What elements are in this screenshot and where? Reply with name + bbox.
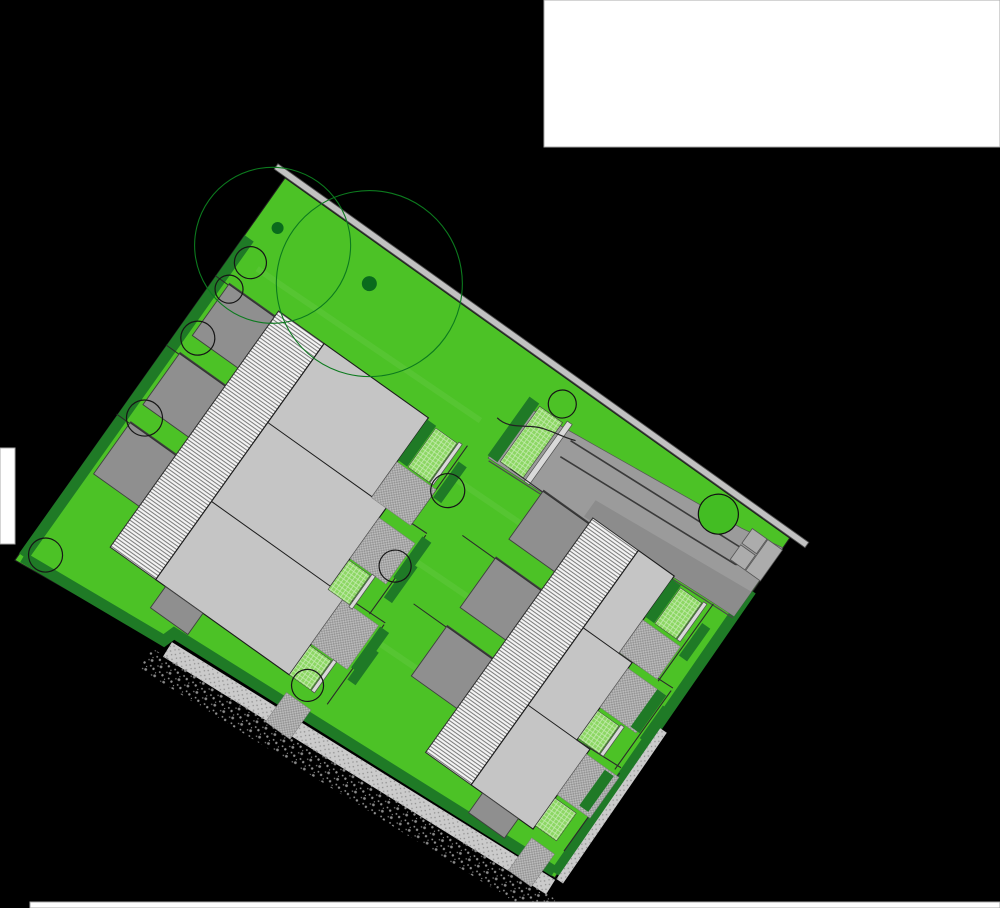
site-plan-canvas (0, 0, 1000, 908)
white-background-patch (0, 448, 15, 544)
site-plan-drawing (0, 0, 1000, 908)
white-background-patch (544, 0, 1000, 147)
white-background-patch (30, 902, 1000, 908)
